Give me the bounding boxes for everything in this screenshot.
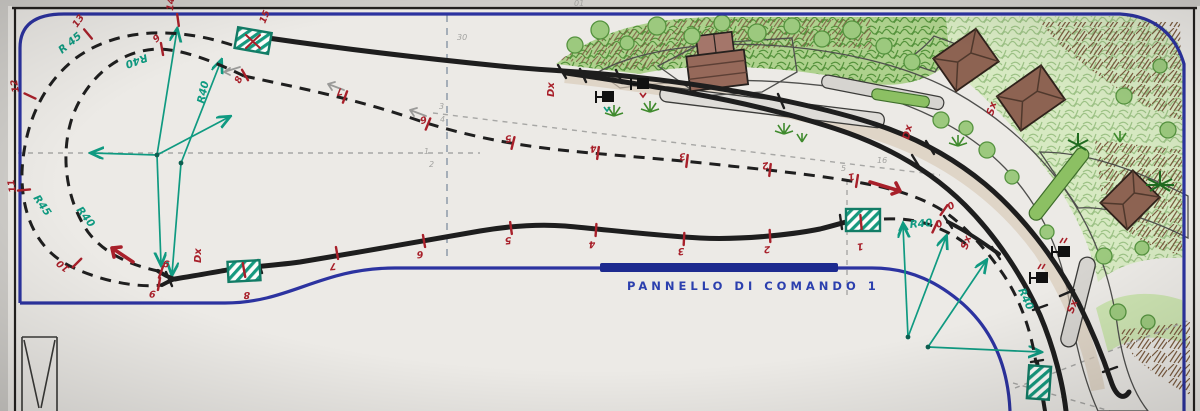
track-plan-photo: 15 14 13 12 11 10 9 9 9 8 7 6 5 4 3 2 1 …	[0, 0, 1200, 411]
track-plan-drawing: 15 14 13 12 11 10 9 9 9 8 7 6 5 4 3 2 1 …	[0, 0, 1200, 411]
photo-vignette	[0, 0, 1200, 411]
